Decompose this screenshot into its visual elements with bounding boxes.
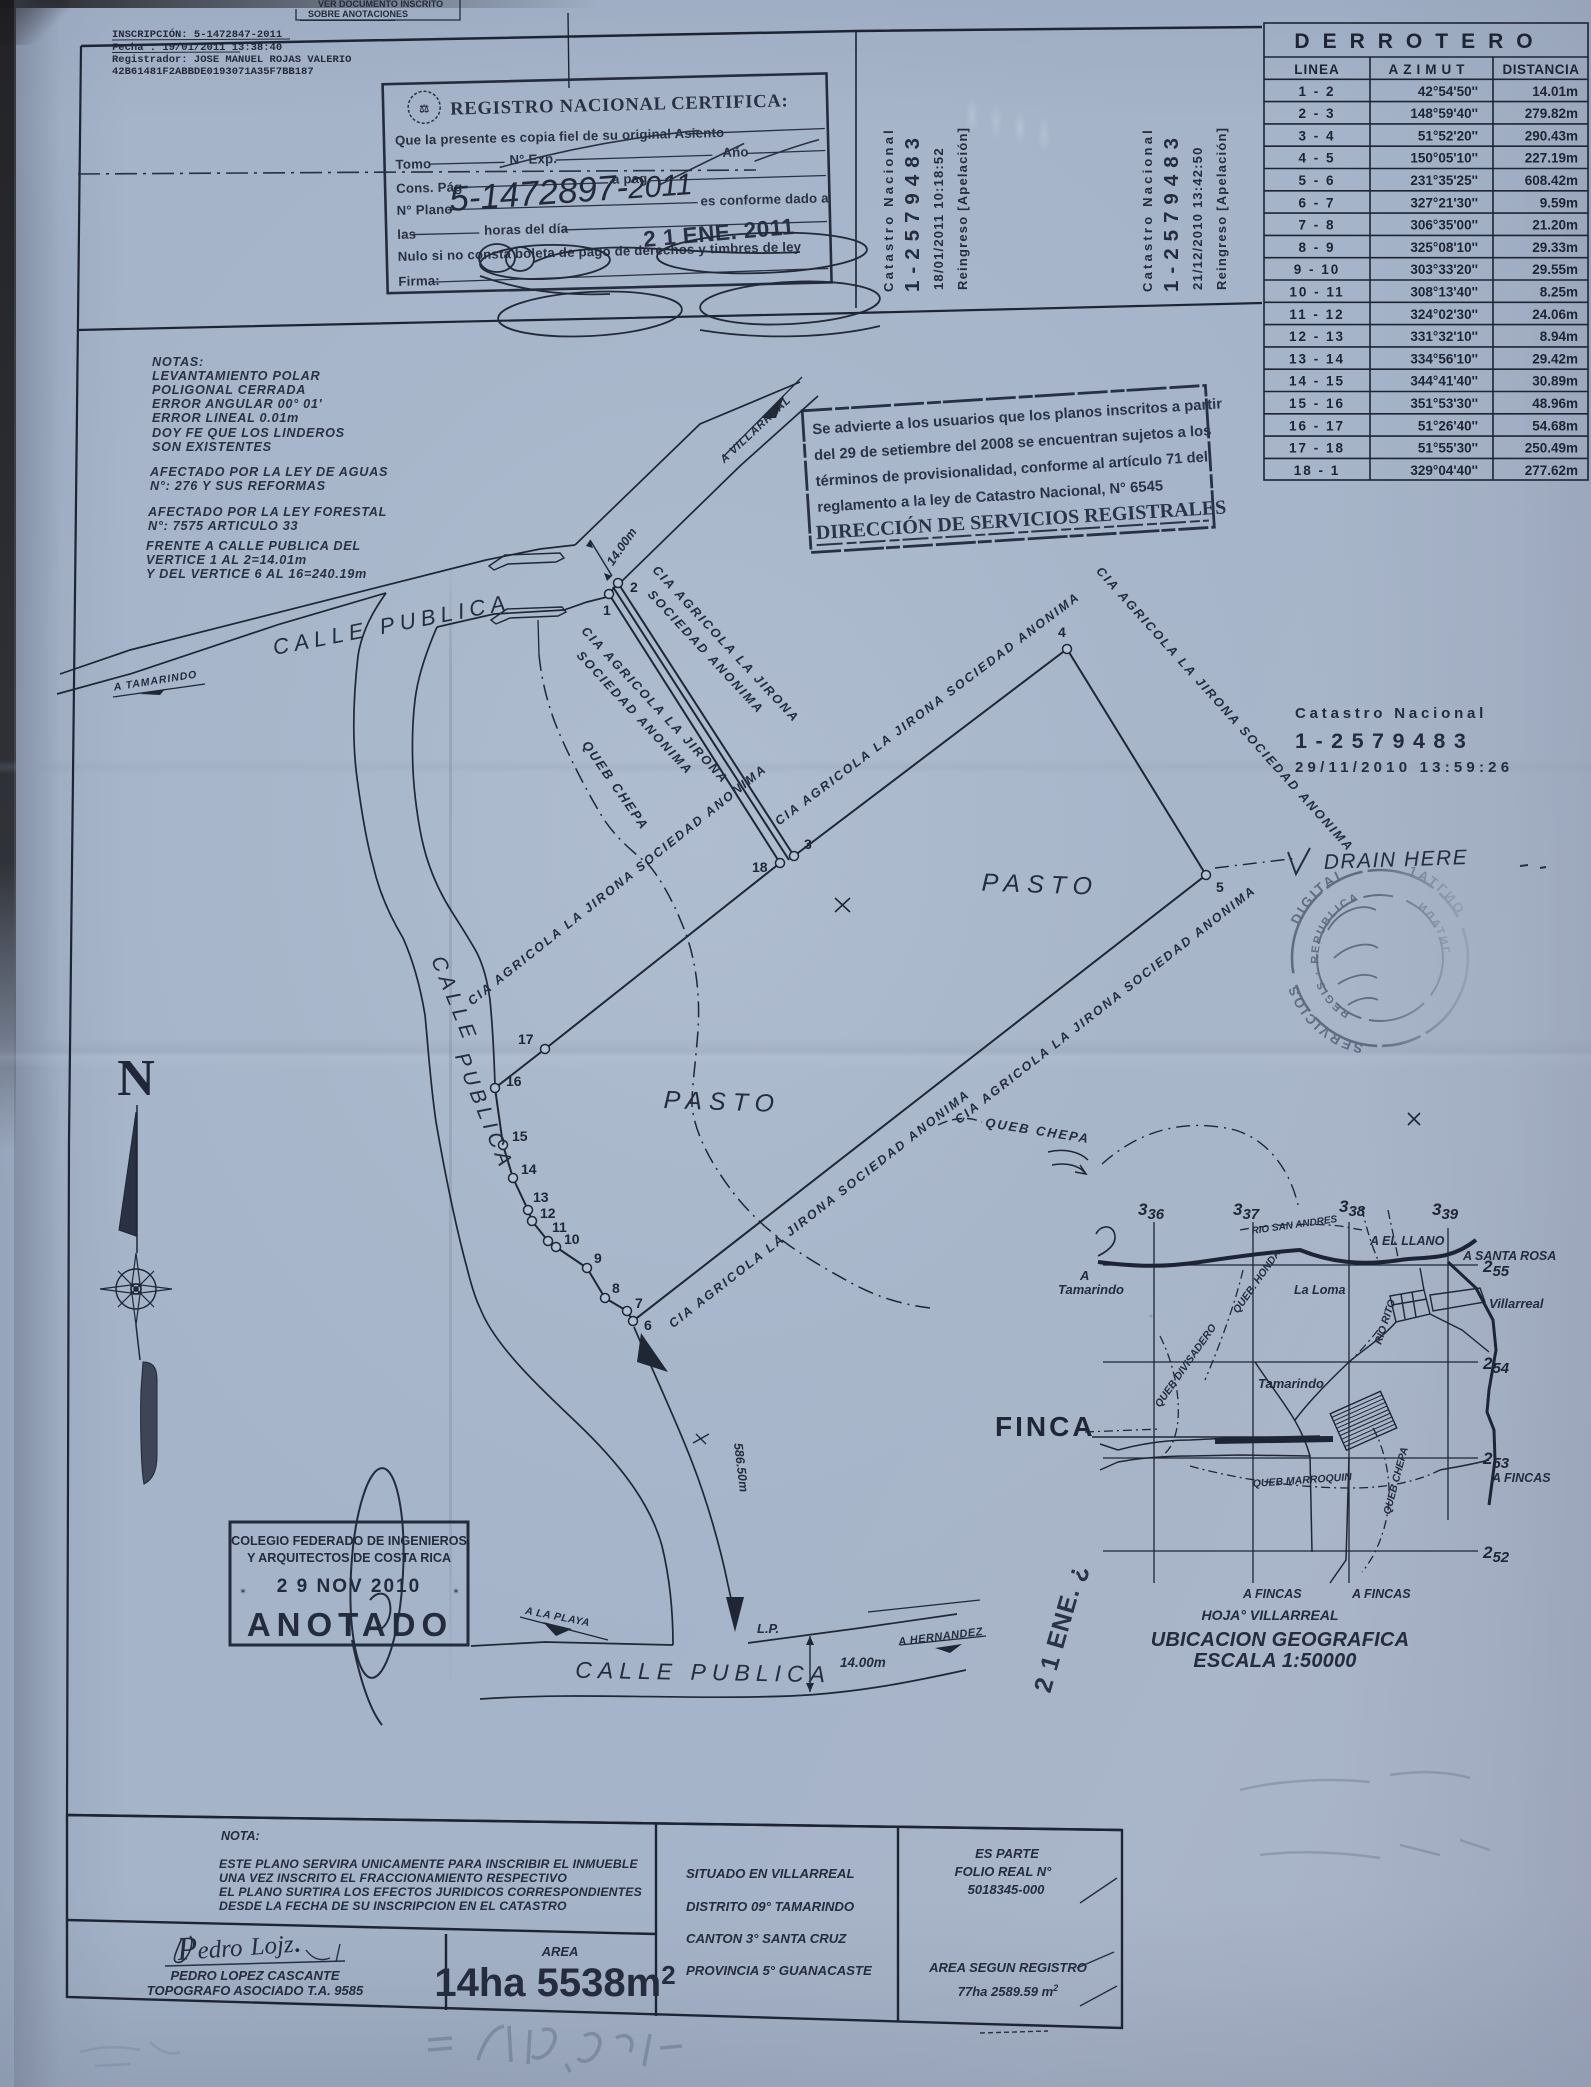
svg-text:CIA AGRICOLA LA JIRONA SOCIEDA: CIA AGRICOLA LA JIRONA SOCIEDAD ANONIMA: [666, 1087, 973, 1331]
svg-text:ERROR ANGULAR 00° 01': ERROR ANGULAR 00° 01': [152, 397, 323, 411]
svg-text:FOLIO REAL N°: FOLIO REAL N°: [955, 1864, 1052, 1879]
svg-text:9.59m: 9.59m: [1540, 195, 1578, 210]
svg-text:ESCALA 1:50000: ESCALA 1:50000: [1193, 1650, 1356, 1672]
svg-text:SOBRE ANOTACIONES: SOBRE ANOTACIONES: [308, 9, 408, 19]
svg-text:Que la presente es copia fiel: Que la presente es copia fiel de su orig…: [395, 125, 725, 148]
svg-text:18 - 1: 18 - 1: [1294, 463, 1341, 478]
svg-text:15 - 16: 15 - 16: [1289, 396, 1345, 411]
svg-text:CALLE PUBLICA: CALLE PUBLICA: [575, 1657, 831, 1687]
svg-text:608.42m: 608.42m: [1525, 173, 1578, 188]
svg-text:DOY FE QUE LOS LINDEROS: DOY FE QUE LOS LINDEROS: [152, 426, 345, 440]
svg-text:21/12/2010 13:42:50: 21/12/2010 13:42:50: [1190, 146, 1205, 290]
svg-text:RIO RITO: RIO RITO: [1372, 1298, 1398, 1346]
svg-text:UBICACION GEOGRAFICA: UBICACION GEOGRAFICA: [1151, 1629, 1409, 1651]
svg-text:2 1 ENE. ¿: 2 1 ENE. ¿: [1029, 1561, 1092, 1696]
svg-text:PASTO: PASTO: [663, 1086, 781, 1118]
svg-text:QUEB DIVISADERO: QUEB DIVISADERO: [1153, 1322, 1219, 1410]
svg-text:252: 252: [1482, 1543, 1510, 1566]
svg-text:11 - 12: 11 - 12: [1289, 307, 1344, 322]
svg-text:PEDRO LOPEZ CASCANTE: PEDRO LOPEZ CASCANTE: [170, 1968, 339, 1983]
svg-text:14.00m: 14.00m: [604, 525, 640, 568]
svg-text:DRAIN HERE: DRAIN HERE: [1323, 846, 1468, 874]
svg-text:4: 4: [1058, 624, 1066, 640]
svg-text:14: 14: [521, 1161, 537, 1177]
svg-text:339: 339: [1432, 1200, 1459, 1223]
svg-text:14.00m: 14.00m: [840, 1655, 886, 1670]
svg-text:LINEA: LINEA: [1294, 62, 1340, 77]
svg-text:EL PLANO SURTIRA LOS EFECTOS J: EL PLANO SURTIRA LOS EFECTOS JURIDICOS C…: [219, 1885, 642, 1899]
svg-text:A FINCAS: A FINCAS: [1491, 1471, 1551, 1485]
svg-text:303°33'20'': 303°33'20'': [1410, 262, 1478, 277]
svg-text:16: 16: [506, 1073, 522, 1089]
svg-text:337: 337: [1233, 1200, 1260, 1223]
svg-text:331°32'10'': 331°32'10'': [1410, 329, 1478, 344]
svg-text:CIA AGRICOLA LA JIRONA SOCIEDA: CIA AGRICOLA LA JIRONA SOCIEDAD ANONIMA: [772, 589, 1082, 828]
svg-text:N° Plano: N° Plano: [397, 202, 453, 218]
svg-text:227.19m: 227.19m: [1525, 151, 1578, 166]
svg-text:HOJA° VILLARREAL: HOJA° VILLARREAL: [1201, 1607, 1338, 1623]
svg-text:DISTANCIA: DISTANCIA: [1503, 62, 1580, 77]
svg-text:A FINCAS: A FINCAS: [1242, 1587, 1302, 1601]
svg-text:QUEB CHEPA: QUEB CHEPA: [579, 738, 652, 833]
svg-text:DISTRITO 09° TAMARINDO: DISTRITO 09° TAMARINDO: [686, 1899, 855, 1914]
svg-text:231°35'25'': 231°35'25'': [1410, 173, 1478, 188]
svg-text:RIO SAN ANDRES: RIO SAN ANDRES: [1251, 1214, 1338, 1237]
svg-text:2: 2: [630, 579, 638, 595]
svg-text:PASTO: PASTO: [981, 869, 1099, 901]
svg-text:344°41'40'': 344°41'40'': [1410, 374, 1478, 389]
svg-text:5 - 6: 5 - 6: [1298, 173, 1335, 188]
svg-text:SON EXISTENTES: SON EXISTENTES: [152, 440, 272, 454]
svg-text:NOTAS:: NOTAS:: [152, 355, 204, 369]
svg-text:29/11/2010 13:59:26: 29/11/2010 13:59:26: [1295, 759, 1513, 776]
svg-text:N°: 276 Y SUS REFORMAS: N°: 276 Y SUS REFORMAS: [150, 479, 326, 493]
svg-text:12: 12: [540, 1205, 556, 1221]
svg-text:14ha 5538m2: 14ha 5538m2: [434, 1960, 675, 2005]
svg-text:A HERNANDEZ: A HERNANDEZ: [897, 1626, 985, 1649]
svg-text:250.49m: 250.49m: [1525, 441, 1578, 456]
svg-text:51°26'40'': 51°26'40'': [1418, 418, 1478, 433]
svg-text:2 - 3: 2 - 3: [1298, 106, 1335, 121]
svg-text:1: 1: [603, 602, 611, 618]
svg-text:279.82m: 279.82m: [1525, 106, 1578, 121]
svg-text:UNA VEZ INSCRITO EL FRACCIONAM: UNA VEZ INSCRITO EL FRACCIONAMIENTO RESP…: [219, 1871, 567, 1885]
svg-text:48.96m: 48.96m: [1532, 396, 1578, 411]
svg-text:TOPOGRAFO ASOCIADO T.A. 9585: TOPOGRAFO ASOCIADO T.A. 9585: [147, 1983, 364, 1998]
svg-text:CALLE PUBLICA: CALLE PUBLICA: [271, 589, 513, 660]
svg-text:Firma:: Firma:: [398, 273, 440, 289]
svg-text:8.94m: 8.94m: [1540, 329, 1578, 344]
svg-text:VERTICE 1 AL 2=14.01m: VERTICE 1 AL 2=14.01m: [146, 553, 307, 567]
svg-text:Villarreal: Villarreal: [1489, 1296, 1544, 1311]
svg-text:POLIGONAL CERRADA: POLIGONAL CERRADA: [152, 383, 306, 397]
svg-text:REGIS · REPUBLICA: REGIS · REPUBLICA: [1309, 891, 1361, 1020]
svg-text:es conforme dado a: es conforme dado a: [700, 190, 829, 208]
svg-text:1-2579483: 1-2579483: [1295, 729, 1474, 753]
svg-text:13 - 14: 13 - 14: [1289, 351, 1345, 366]
svg-text:PROVINCIA 5° GUANACASTE: PROVINCIA 5° GUANACASTE: [686, 1963, 873, 1978]
svg-text:6: 6: [644, 1317, 652, 1333]
svg-text:586.50m: 586.50m: [731, 1442, 751, 1493]
svg-text:Pedro Lojz.: Pedro Lojz.: [175, 1923, 303, 1968]
svg-text:10 - 11: 10 - 11: [1289, 285, 1344, 300]
svg-text:FRENTE A CALLE PUBLICA DEL: FRENTE A CALLE PUBLICA DEL: [146, 539, 361, 553]
svg-text:CIA AGRICOLA LA JIRONA: CIA AGRICOLA LA JIRONA: [650, 563, 803, 725]
svg-text:1 - 2: 1 - 2: [1298, 84, 1335, 99]
svg-text:30.89m: 30.89m: [1532, 374, 1578, 389]
svg-text:7 - 8: 7 - 8: [1298, 218, 1335, 233]
svg-text:8: 8: [612, 1280, 620, 1296]
svg-text:9 - 10: 9 - 10: [1294, 262, 1341, 277]
svg-text:18: 18: [752, 859, 768, 875]
svg-text:⚖: ⚖: [419, 103, 429, 115]
svg-text:12 - 13: 12 - 13: [1289, 329, 1345, 344]
svg-text:ESTE PLANO SERVIRA UNICAMENTE: ESTE PLANO SERVIRA UNICAMENTE PARA INSCR…: [219, 1857, 639, 1871]
svg-text:Catastro Nacional: Catastro Nacional: [1140, 127, 1155, 292]
svg-text:A SANTA ROSA: A SANTA ROSA: [1462, 1249, 1556, 1263]
svg-text:9: 9: [594, 1250, 602, 1266]
svg-text:3 - 4: 3 - 4: [1298, 128, 1335, 143]
svg-text:SITUADO EN VILLARREAL: SITUADO EN VILLARREAL: [686, 1866, 855, 1881]
svg-text:AREA: AREA: [541, 1944, 579, 1959]
svg-text:A: A: [1079, 1268, 1089, 1283]
svg-text:Tomo: Tomo: [395, 156, 431, 172]
svg-text:24.06m: 24.06m: [1532, 307, 1578, 322]
svg-text:42B61481F2ABBDE0193071A35F7BB1: 42B61481F2ABBDE0193071A35F7BB187: [112, 66, 314, 78]
svg-text:A VILLARREAL: A VILLARREAL: [717, 394, 793, 466]
svg-text:FINCA: FINCA: [995, 1411, 1096, 1442]
svg-text:4 - 5: 4 - 5: [1298, 151, 1335, 166]
svg-text:DESDE LA FECHA DE SU INSCRIPCI: DESDE LA FECHA DE SU INSCRIPCION EN EL C…: [219, 1899, 567, 1913]
svg-text:QUEB CHEPA: QUEB CHEPA: [1381, 1446, 1411, 1516]
svg-text:AREA SEGUN REGISTRO: AREA SEGUN REGISTRO: [928, 1960, 1087, 1975]
svg-text:3: 3: [804, 836, 812, 852]
svg-text:1-2579483: 1-2579483: [1160, 131, 1183, 292]
svg-text:CANTON 3° SANTA CRUZ: CANTON 3° SANTA CRUZ: [686, 1931, 847, 1946]
svg-text:290.43m: 290.43m: [1525, 128, 1578, 143]
svg-text:18/01/2011 10:18:52: 18/01/2011 10:18:52: [931, 147, 946, 290]
svg-text:1-2579483: 1-2579483: [901, 131, 924, 292]
svg-text:NOTA:: NOTA:: [221, 1829, 260, 1843]
svg-text:13: 13: [533, 1189, 549, 1205]
svg-text:AFECTADO POR LA LEY FORESTAL: AFECTADO POR LA LEY FORESTAL: [147, 505, 387, 519]
svg-text:51°52'20'': 51°52'20'': [1418, 128, 1478, 143]
svg-text:LEVANTAMIENTO POLAR: LEVANTAMIENTO POLAR: [152, 369, 321, 383]
svg-text:N°: 7575 ARTICULO 33: N°: 7575 ARTICULO 33: [148, 519, 298, 533]
svg-text:CIA AGRICOLA LA JIRONA SOCIEDA: CIA AGRICOLA LA JIRONA SOCIEDAD ANONIMA: [952, 883, 1259, 1127]
svg-text:329°04'40'': 329°04'40'': [1410, 463, 1478, 478]
svg-text:29.55m: 29.55m: [1532, 262, 1578, 277]
svg-text:150°05'10'': 150°05'10'': [1410, 151, 1478, 166]
svg-text:6 - 7: 6 - 7: [1298, 195, 1335, 210]
svg-text:PUBLICA: PUBLICA: [450, 1049, 518, 1173]
svg-text:A FINCAS: A FINCAS: [1351, 1587, 1411, 1601]
svg-text:Registrador: JOSE MANUEL ROJAS: Registrador: JOSE MANUEL ROJAS VALERIO: [112, 54, 351, 66]
svg-text:21.20m: 21.20m: [1532, 218, 1578, 233]
svg-text:306°35'00'': 306°35'00'': [1410, 218, 1478, 233]
svg-text:277.62m: 277.62m: [1525, 463, 1578, 478]
svg-text:42°54'50'': 42°54'50'': [1418, 84, 1478, 99]
svg-text:ИЛАТИГ: ИЛАТИГ: [1415, 901, 1451, 956]
svg-text:2 9 NOV 2010: 2 9 NOV 2010: [277, 1576, 421, 1597]
svg-text:14.01m: 14.01m: [1532, 84, 1578, 99]
svg-text:Tamarindo: Tamarindo: [1258, 1376, 1324, 1391]
svg-text:77ha 2589.59 m2: 77ha 2589.59 m2: [958, 1983, 1058, 1999]
svg-text:VER DOCUMENTO INSCRITO: VER DOCUMENTO INSCRITO: [318, 0, 443, 9]
svg-text:351°53'30'': 351°53'30'': [1410, 396, 1478, 411]
svg-text:Tamarindo: Tamarindo: [1058, 1282, 1124, 1297]
svg-text:⁎: ⁎: [240, 1584, 246, 1596]
svg-text:AFECTADO POR LA LEY DE AGUAS: AFECTADO POR LA LEY DE AGUAS: [149, 465, 388, 479]
svg-text:QUEB MARROQUIN: QUEB MARROQUIN: [1252, 1471, 1352, 1490]
svg-text:DERROTERO: DERROTERO: [1294, 30, 1545, 53]
svg-text:5: 5: [1216, 879, 1224, 895]
svg-text:308°13'40'': 308°13'40'': [1410, 285, 1478, 300]
svg-text:A TAMARINDO: A TAMARINDO: [112, 669, 198, 694]
svg-text:148°59'40'': 148°59'40'': [1410, 106, 1478, 121]
svg-text:Catastro Nacional: Catastro Nacional: [1295, 705, 1487, 722]
svg-text:Catastro Nacional: Catastro Nacional: [881, 127, 896, 292]
svg-text:horas del día: horas del día: [484, 221, 569, 238]
svg-text:29.42m: 29.42m: [1532, 351, 1578, 366]
svg-text:COLEGIO FEDERADO DE INGENIEROS: COLEGIO FEDERADO DE INGENIEROS: [231, 1534, 467, 1548]
svg-text:L.P.: L.P.: [757, 1621, 779, 1636]
svg-text:14 - 15: 14 - 15: [1289, 374, 1345, 389]
svg-text:N: N: [117, 1050, 155, 1107]
svg-text:16 - 17: 16 - 17: [1289, 418, 1345, 433]
svg-text:324°02'30'': 324°02'30'': [1410, 307, 1478, 322]
svg-text:17 - 18: 17 - 18: [1289, 441, 1345, 456]
svg-text:REGISTRO NACIONAL CERTIFICA:: REGISTRO NACIONAL CERTIFICA:: [450, 91, 789, 119]
svg-text:11: 11: [552, 1219, 567, 1235]
svg-text:5018345-000: 5018345-000: [968, 1882, 1045, 1897]
svg-text:Y ARQUITECTOS DE COSTA RICA: Y ARQUITECTOS DE COSTA RICA: [247, 1551, 451, 1565]
svg-text:La Loma: La Loma: [1294, 1283, 1345, 1297]
svg-text:51°55'30'': 51°55'30'': [1418, 441, 1478, 456]
svg-text:A EL LLANO: A EL LLANO: [1369, 1234, 1445, 1248]
svg-text:5-1472897-2011: 5-1472897-2011: [448, 163, 694, 219]
svg-text:334°56'10'': 334°56'10'': [1410, 351, 1478, 366]
svg-text:⁎: ⁎: [453, 1584, 459, 1596]
svg-text:15: 15: [512, 1128, 528, 1144]
svg-text:327°21'30'': 327°21'30'': [1410, 195, 1478, 210]
svg-text:QUEB CHEPA: QUEB CHEPA: [984, 1115, 1091, 1146]
svg-text:ERROR LINEAL 0.01m: ERROR LINEAL 0.01m: [152, 411, 299, 425]
svg-text:17: 17: [518, 1031, 534, 1047]
svg-text:336: 336: [1138, 1200, 1165, 1223]
svg-text:Reingreso [Apelación]: Reingreso [Apelación]: [955, 127, 970, 290]
svg-text:AZIMUT: AZIMUT: [1389, 62, 1470, 77]
svg-text:29.33m: 29.33m: [1532, 240, 1578, 255]
svg-text:8 - 9: 8 - 9: [1298, 240, 1335, 255]
svg-text:54.68m: 54.68m: [1532, 418, 1578, 433]
svg-text:325°08'10'': 325°08'10'': [1410, 240, 1478, 255]
svg-text:Reingreso [Apelación]: Reingreso [Apelación]: [1214, 127, 1229, 290]
svg-text:ES PARTE: ES PARTE: [975, 1846, 1039, 1861]
svg-text:7: 7: [635, 1295, 643, 1311]
svg-text:8.25m: 8.25m: [1540, 285, 1578, 300]
svg-text:Y DEL VERTICE 6 AL 16=240.19m: Y DEL VERTICE 6 AL 16=240.19m: [146, 567, 367, 581]
